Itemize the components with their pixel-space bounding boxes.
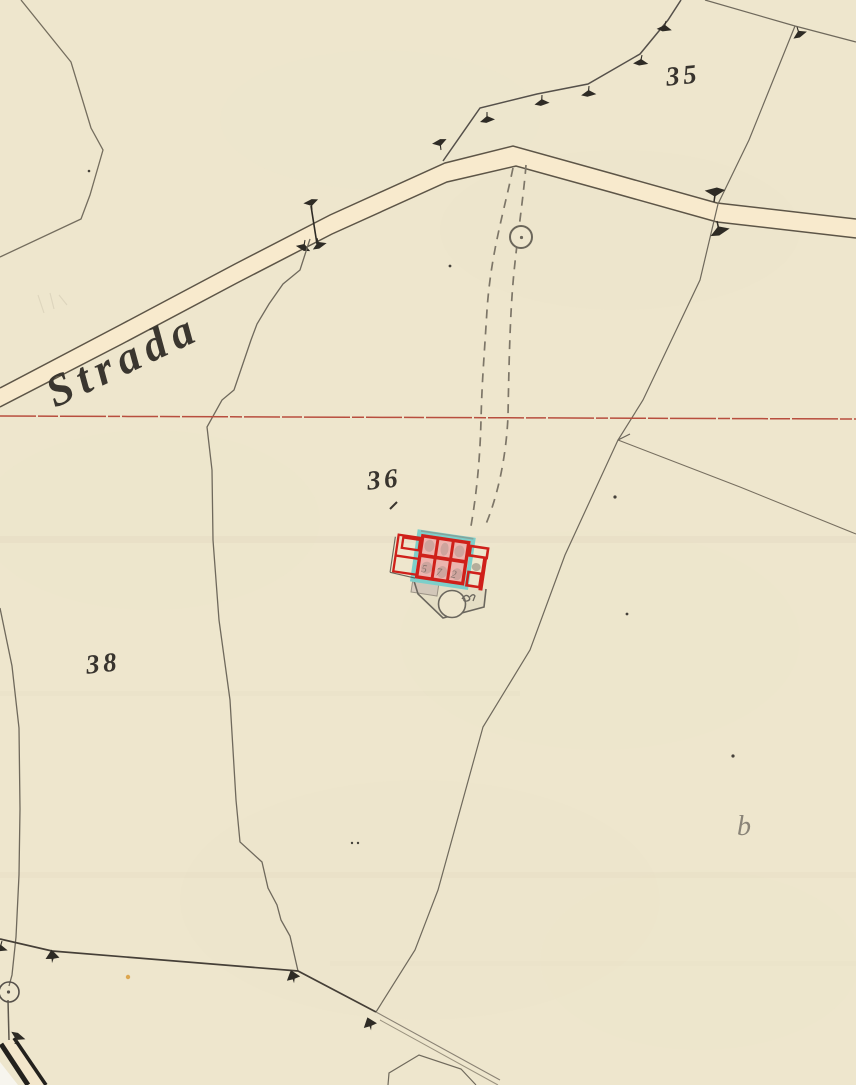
svg-text:35: 35: [663, 58, 701, 91]
svg-text:38: 38: [83, 646, 121, 679]
svg-text:36: 36: [364, 462, 402, 495]
svg-text:b: b: [737, 811, 751, 842]
